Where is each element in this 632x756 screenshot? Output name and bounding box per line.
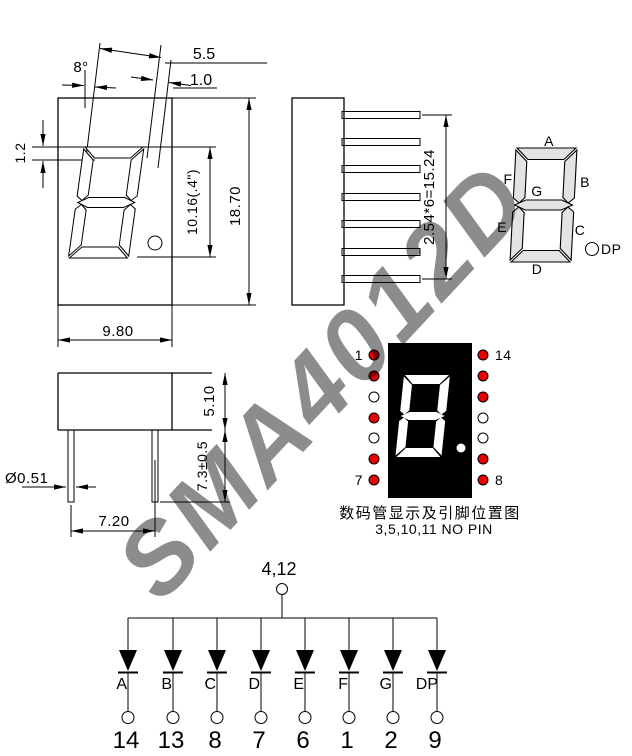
dim-angle-label: 8° (73, 59, 88, 76)
pin-dot (478, 371, 488, 381)
dim-lead-diameter-label: Ø0.51 (5, 470, 48, 487)
diode-label: DP (416, 676, 438, 693)
diode-label: A (116, 676, 127, 693)
diode-label: D (248, 676, 260, 693)
pin-label-8: 8 (495, 472, 503, 488)
front-digit-outline (68, 147, 144, 258)
pin-dot (478, 392, 488, 402)
dim-seg-thickness-label: 1.2 (12, 143, 28, 164)
pin-label-7: 7 (355, 472, 363, 488)
common-terminal (277, 584, 288, 595)
lead-left (68, 430, 74, 502)
pin-number: 9 (428, 727, 441, 754)
no-pin-note: 3,5,10,11 NO PIN (375, 521, 492, 537)
dim-digit-height-label: 10.16(.4") (184, 169, 200, 235)
pin-dot (478, 350, 488, 360)
pin-dot (369, 413, 379, 423)
drawing-canvas: 18.70 10.16(.4") 9.80 1.2 5.5 1.0 8° (0, 0, 632, 756)
pin-dot (478, 475, 488, 485)
segment-label-d: D (532, 261, 543, 277)
pin-number: 2 (384, 727, 397, 754)
common-pin-label: 4,12 (261, 559, 296, 579)
diode-label: E (293, 676, 304, 693)
pin-number: 1 (340, 727, 353, 754)
pin-number: 7 (252, 727, 265, 754)
pin-diagram-caption: 数码管显示及引脚位置图 (339, 505, 521, 522)
diode-label: B (161, 676, 172, 693)
dim-overall-width-label: 9.80 (102, 323, 133, 340)
pin-dot (478, 433, 488, 443)
pin-dot (369, 433, 379, 443)
segment-label-g: G (531, 183, 542, 199)
pin-dot (369, 475, 379, 485)
dim-seg-width-label: 1.0 (190, 72, 212, 89)
diode-label: F (338, 676, 348, 693)
diode-label: G (380, 676, 392, 693)
pin-dot (369, 454, 379, 464)
segment-label-a: A (544, 133, 554, 149)
diode-label: C (204, 676, 216, 693)
pin-number: 6 (296, 727, 309, 754)
segment-dp-circle (586, 243, 599, 256)
dim-overall-height-label: 18.70 (227, 186, 244, 226)
side-body-outline (292, 98, 344, 305)
dim-body-thickness-label: 5.10 (201, 385, 218, 416)
pin-number: 13 (158, 727, 185, 754)
pin-dot (478, 454, 488, 464)
dim-seg-top-offset-label: 5.5 (193, 46, 215, 63)
pin-number: 8 (208, 727, 221, 754)
pin-number: 14 (113, 727, 140, 754)
segment-label-b: B (580, 174, 590, 190)
pin-dot (478, 413, 488, 423)
front-dp-outline (148, 236, 162, 250)
display-dp (457, 444, 466, 453)
datasheet-drawing: 18.70 10.16(.4") 9.80 1.2 5.5 1.0 8° (0, 0, 632, 756)
segment-label-dp: DP (601, 241, 621, 257)
pin-label-14: 14 (495, 347, 512, 363)
front-view: 18.70 10.16(.4") 9.80 1.2 5.5 1.0 8° (12, 43, 267, 347)
segment-label-c: C (575, 222, 586, 238)
